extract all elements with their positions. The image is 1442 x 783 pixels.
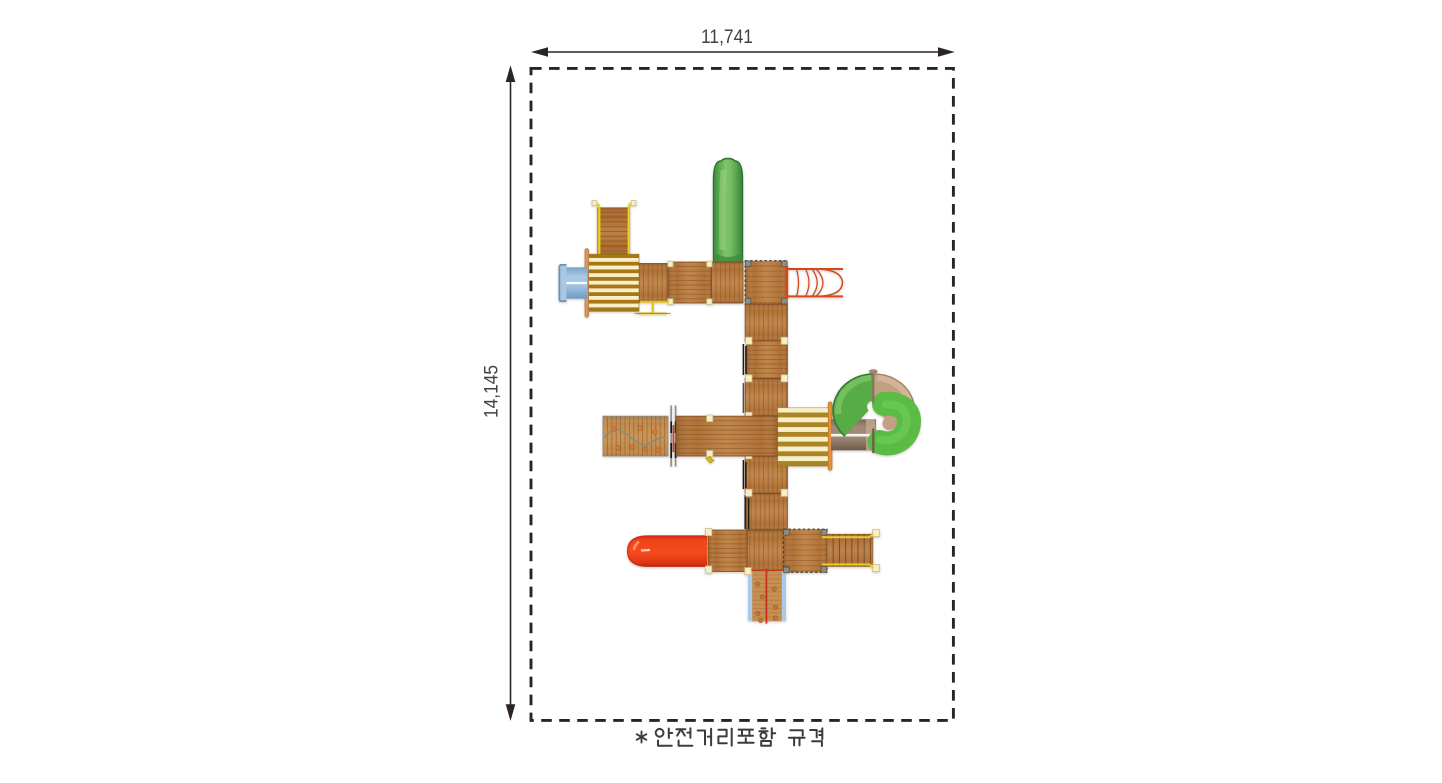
svg-text:11,741: 11,741 xyxy=(701,26,753,48)
svg-text:14,145: 14,145 xyxy=(481,365,503,418)
